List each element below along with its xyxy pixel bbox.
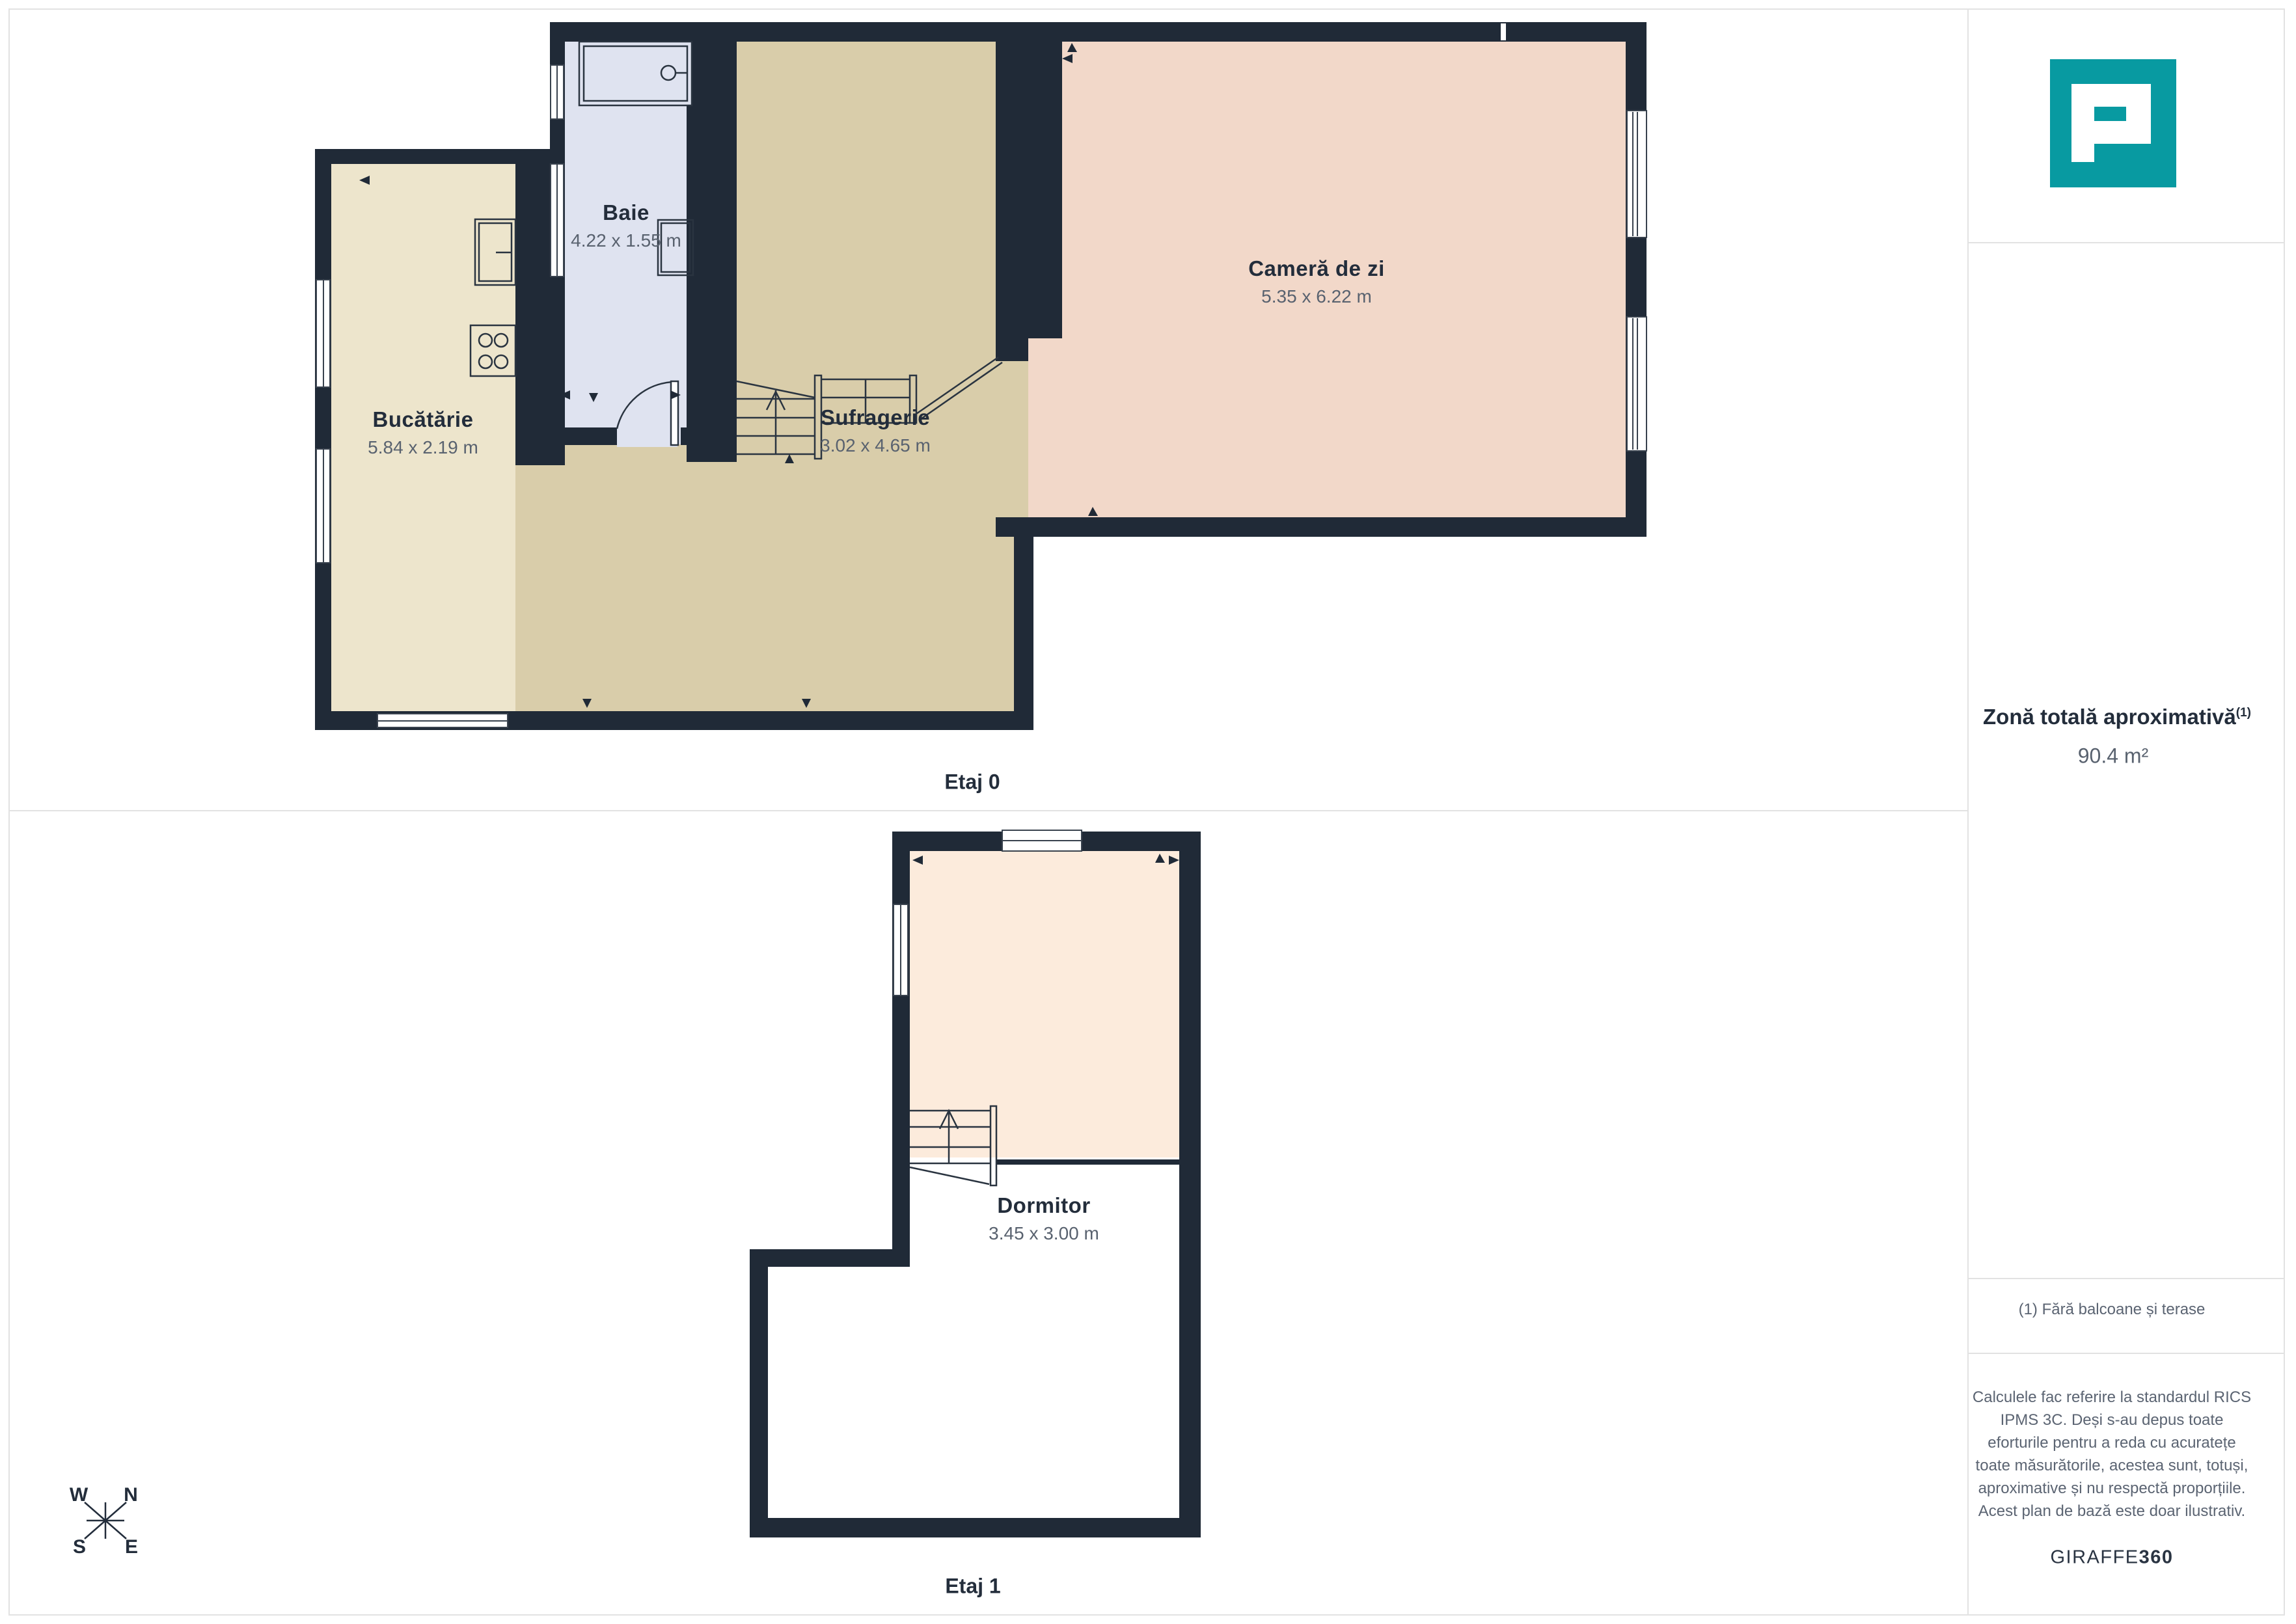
room-label-camera-de-zi: Cameră de zi 5.35 x 6.22 m — [1248, 256, 1385, 307]
room-name: Baie — [571, 200, 681, 225]
room-name: Sufragerie — [820, 405, 931, 430]
disclaimer-text: Calculele fac referire la standardul RIC… — [1959, 1386, 2265, 1522]
room-dims: 3.02 x 4.65 m — [820, 435, 931, 456]
bathtub — [579, 42, 692, 105]
floor-plan-page: { "palette": { "wall": "#202a37", "kitch… — [0, 0, 2296, 1624]
floor-plan-etaj-1 — [750, 830, 1201, 1537]
footnote-text: (1) Fără balcoane și terase — [2019, 1301, 2206, 1319]
room-name: Bucătărie — [368, 407, 478, 432]
brand-name: GIRAFFE — [2050, 1547, 2139, 1568]
compass-east-label: E — [125, 1536, 138, 1558]
brand-wordmark: GIRAFFE360 — [2050, 1547, 2173, 1569]
total-area-value: 90.4 m² — [2078, 744, 2148, 768]
room-label-dormitor: Dormitor 3.45 x 3.00 m — [989, 1193, 1099, 1244]
room-name: Cameră de zi — [1248, 256, 1385, 281]
room-label-bucatarie: Bucătărie 5.84 x 2.19 m — [368, 407, 478, 458]
room-dims: 4.22 x 1.55 m — [571, 230, 681, 251]
floor-label-etaj-1: Etaj 1 — [945, 1575, 1000, 1599]
brand-suffix: 360 — [2139, 1547, 2174, 1568]
room-name: Dormitor — [989, 1193, 1099, 1218]
room-dims: 5.84 x 2.19 m — [368, 437, 478, 458]
total-area-title: Zonă totală aproximativă(1) — [1983, 705, 2251, 729]
room-label-sufragerie: Sufragerie 3.02 x 4.65 m — [820, 405, 931, 456]
total-area-footnote-ref: (1) — [2236, 706, 2251, 720]
room-dims: 3.45 x 3.00 m — [989, 1223, 1099, 1244]
floor-plan-etaj-0 — [315, 22, 1647, 730]
compass-north-label: N — [124, 1484, 138, 1506]
total-area-title-text: Zonă totală aproximativă — [1983, 705, 2236, 729]
compass-south-label: S — [73, 1536, 86, 1558]
room-dims: 5.35 x 6.22 m — [1248, 286, 1385, 307]
room-label-baie: Baie 4.22 x 1.55 m — [571, 200, 681, 251]
compass-west-label: W — [70, 1484, 88, 1506]
floor-label-etaj-0: Etaj 0 — [944, 770, 1000, 794]
compass-icon — [85, 1502, 126, 1539]
plan-canvas — [0, 0, 2296, 1624]
brand-logo-icon — [2050, 59, 2176, 187]
